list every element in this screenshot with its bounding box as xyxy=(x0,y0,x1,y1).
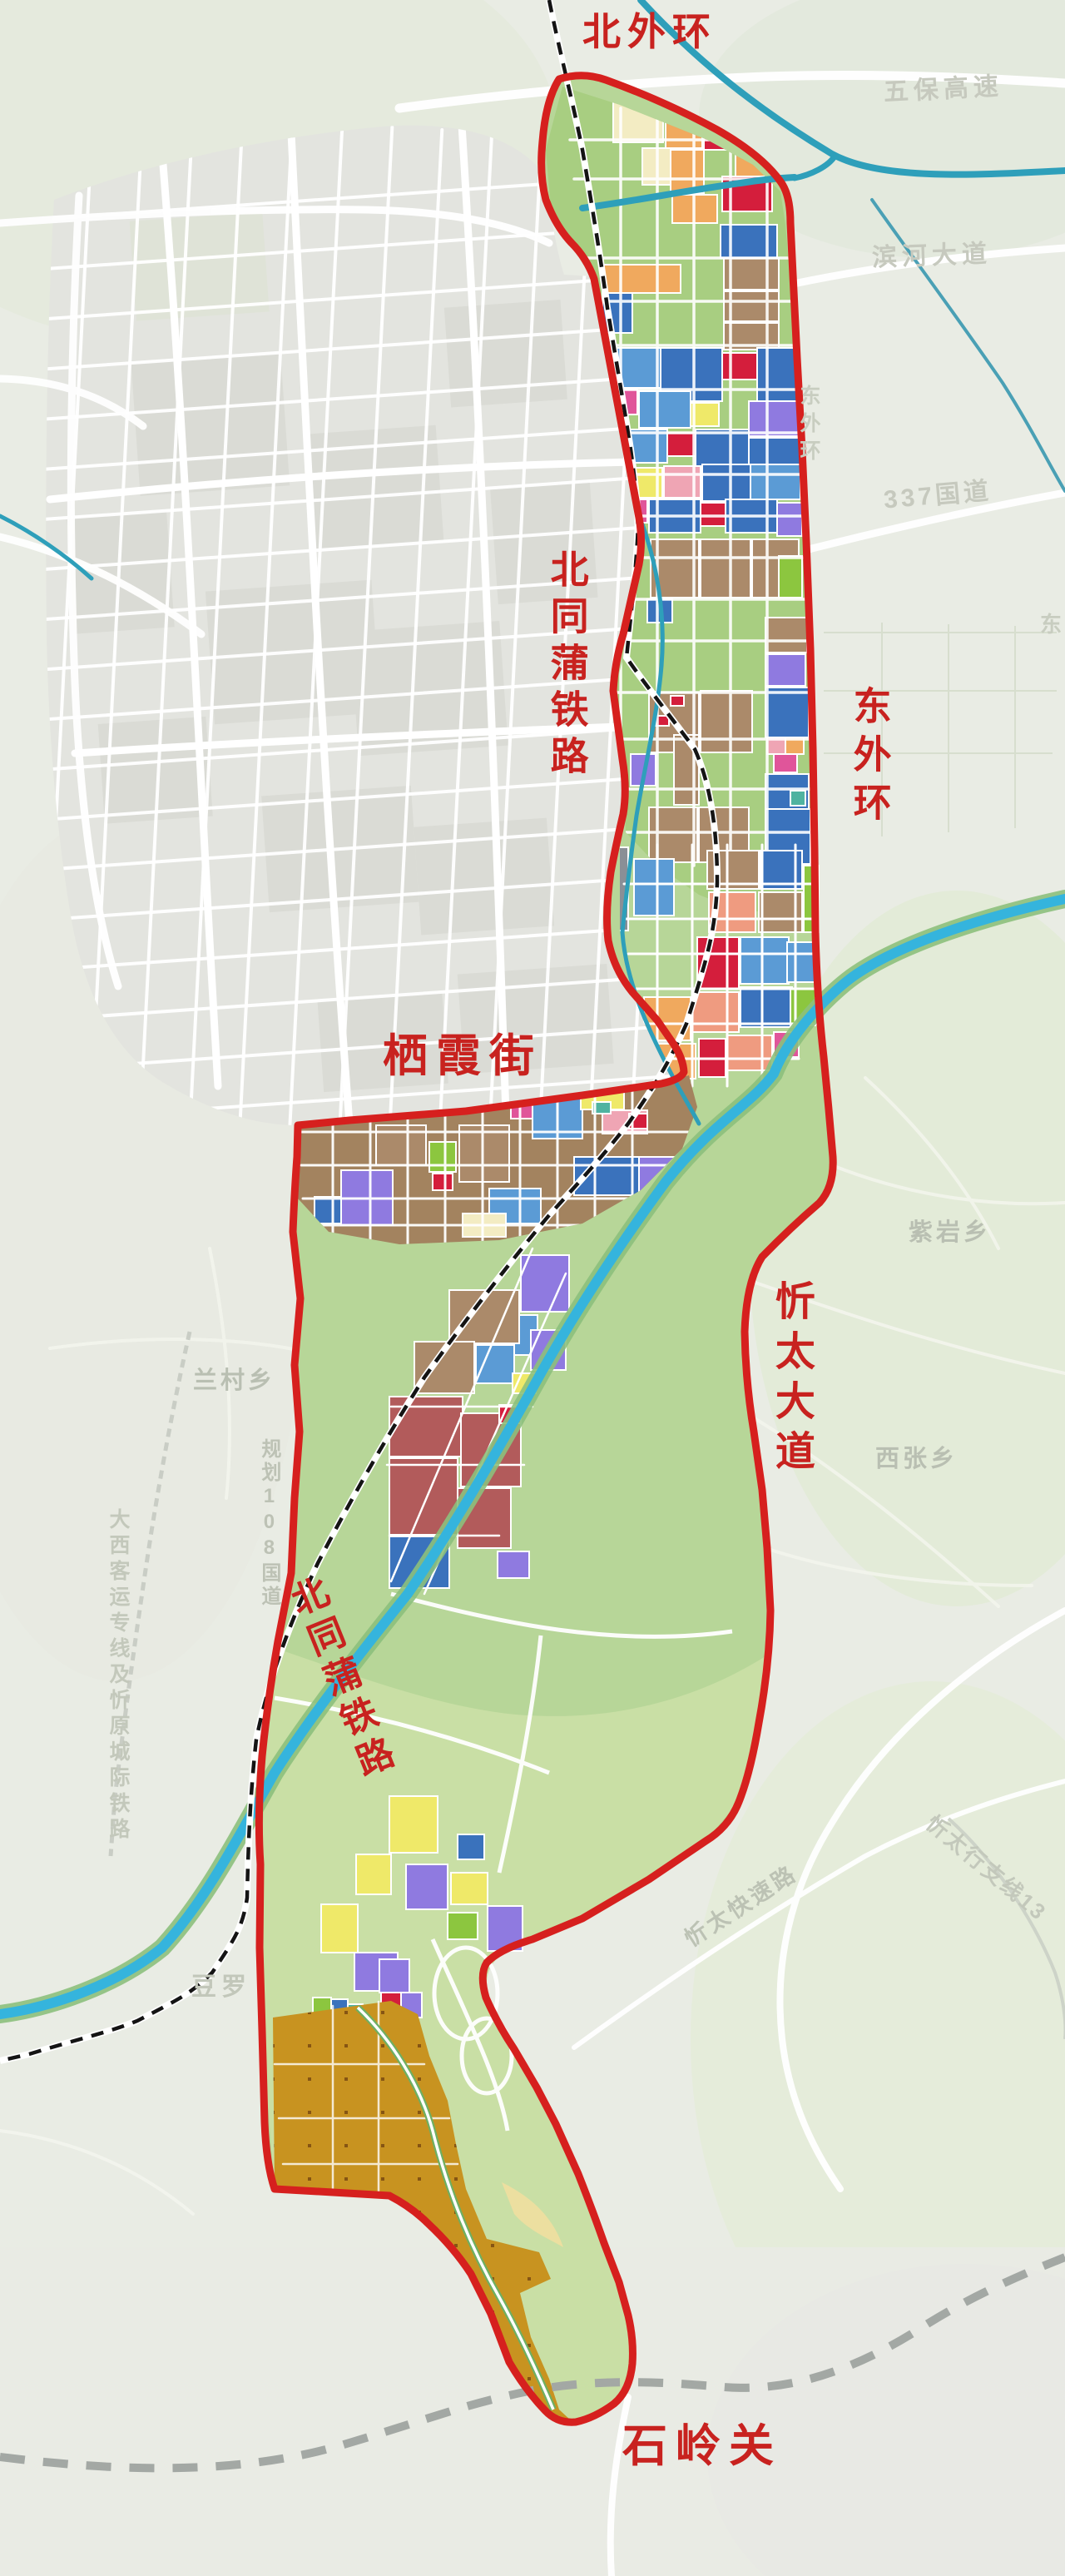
label-binhe-avenue: 滨河大道 xyxy=(871,241,992,271)
label-ziyan-township: 紫岩乡 xyxy=(909,1220,991,1246)
label-lancun-township: 兰村乡 xyxy=(193,1368,275,1394)
label-planned-g108: 规划108国道 xyxy=(258,1438,280,1609)
label-east-outer-ring: 东外环 xyxy=(849,686,890,831)
label-north-outer-ring: 北外环 xyxy=(582,12,717,53)
label-east-partial: 东 xyxy=(1040,613,1062,636)
label-xintai-avenue: 忻太大道 xyxy=(769,1280,812,1480)
label-shiling-pass: 石岭关 xyxy=(622,2422,782,2470)
label-douluo: 豆罗 xyxy=(191,1974,251,2001)
label-beitongpu-railway-north: 北同蒲铁路 xyxy=(546,549,587,782)
label-daxi-rail-line: 大西客运专线及忻原城际铁路 xyxy=(106,1508,129,1844)
planning-map: 北外环 北同蒲铁路 东外环 栖霞街 忻太大道 北同蒲铁路 石岭关 五保高速 滨河… xyxy=(0,0,1065,2576)
label-east-outer-ring-faint: 东外环 xyxy=(797,385,820,467)
map-canvas xyxy=(0,0,1065,2576)
label-qixia-street: 栖霞街 xyxy=(383,1032,542,1080)
label-xizhang-township: 西张乡 xyxy=(875,1447,958,1472)
